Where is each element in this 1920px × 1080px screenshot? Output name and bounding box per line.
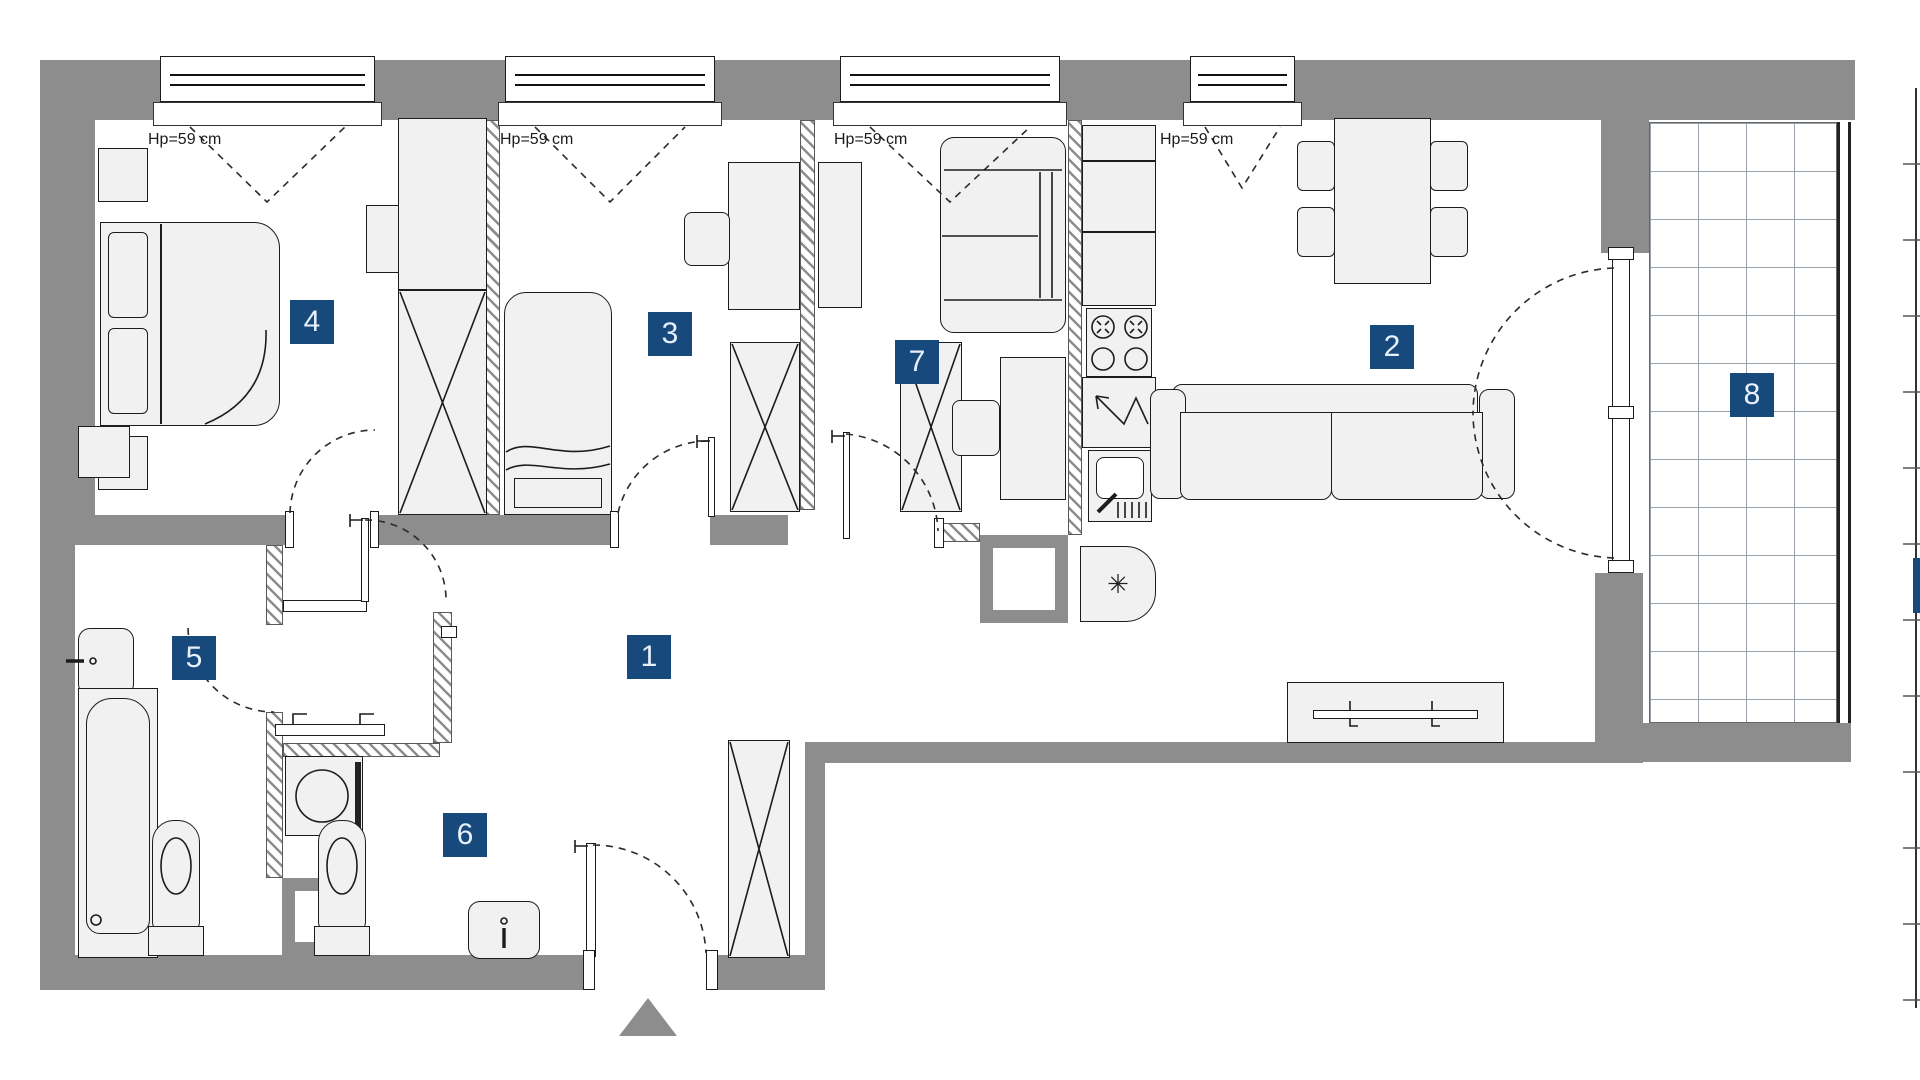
room-label-2: 2 bbox=[1370, 325, 1414, 369]
entrance-door-swing-arc bbox=[593, 845, 706, 953]
bathtub-drain bbox=[91, 915, 101, 925]
room-label-1: 1 bbox=[627, 635, 671, 679]
door-handle-hook bbox=[832, 430, 845, 443]
bed-blanket-fold bbox=[205, 330, 266, 424]
window-parapet-label: Hp=59 cm bbox=[834, 131, 907, 149]
basin-tap-dot bbox=[90, 658, 96, 664]
armchair-back-lines bbox=[942, 170, 1062, 300]
door-handle-hook bbox=[293, 714, 374, 724]
floor-plan: ✳ bbox=[0, 0, 1920, 1080]
neighbor-grid-ticks bbox=[1903, 164, 1920, 1000]
sink-faucet bbox=[1098, 494, 1116, 512]
door-swing-arc bbox=[290, 430, 375, 513]
stove-burner bbox=[1092, 316, 1114, 338]
room-label-6: 6 bbox=[443, 813, 487, 857]
toilet-seat bbox=[327, 838, 357, 894]
door-swing-arc bbox=[365, 520, 446, 598]
stove-burner bbox=[1125, 316, 1147, 338]
balcony-door-swing-arc bbox=[1473, 413, 1614, 558]
stove-burner bbox=[1125, 348, 1147, 370]
window-parapet-label: Hp=59 cm bbox=[1160, 131, 1233, 149]
sink-drain-comb bbox=[1118, 502, 1146, 518]
door-handle-hook bbox=[697, 435, 710, 448]
window-parapet-label: Hp=59 cm bbox=[500, 131, 573, 149]
window-parapet-label: Hp=59 cm bbox=[148, 131, 221, 149]
tv-bracket bbox=[1350, 701, 1440, 726]
room-label-4: 4 bbox=[290, 300, 334, 344]
counter-symbol-zigzag bbox=[1096, 396, 1148, 424]
wardrobe-x-mark bbox=[730, 742, 788, 956]
bed-blanket-waves bbox=[506, 446, 610, 470]
room-label-5: 5 bbox=[172, 636, 216, 680]
stove-burner-cross bbox=[1097, 321, 1142, 333]
room-label-3: 3 bbox=[648, 312, 692, 356]
door-swing-arc bbox=[618, 441, 711, 513]
door-handle-hook bbox=[575, 840, 588, 853]
stove-burner bbox=[1092, 348, 1114, 370]
room-label-8: 8 bbox=[1730, 373, 1774, 417]
room-label-7: 7 bbox=[895, 340, 939, 384]
door-handle-hook bbox=[350, 514, 363, 527]
basin-tap-dot bbox=[501, 918, 507, 924]
washing-machine-drum bbox=[296, 770, 348, 822]
toilet-seat bbox=[161, 838, 191, 894]
balcony-door-swing-arc bbox=[1473, 268, 1614, 413]
wardrobe-x-mark bbox=[400, 292, 485, 513]
plan-symbol-overlay bbox=[0, 0, 1920, 1080]
wardrobe-x-mark bbox=[732, 344, 798, 510]
